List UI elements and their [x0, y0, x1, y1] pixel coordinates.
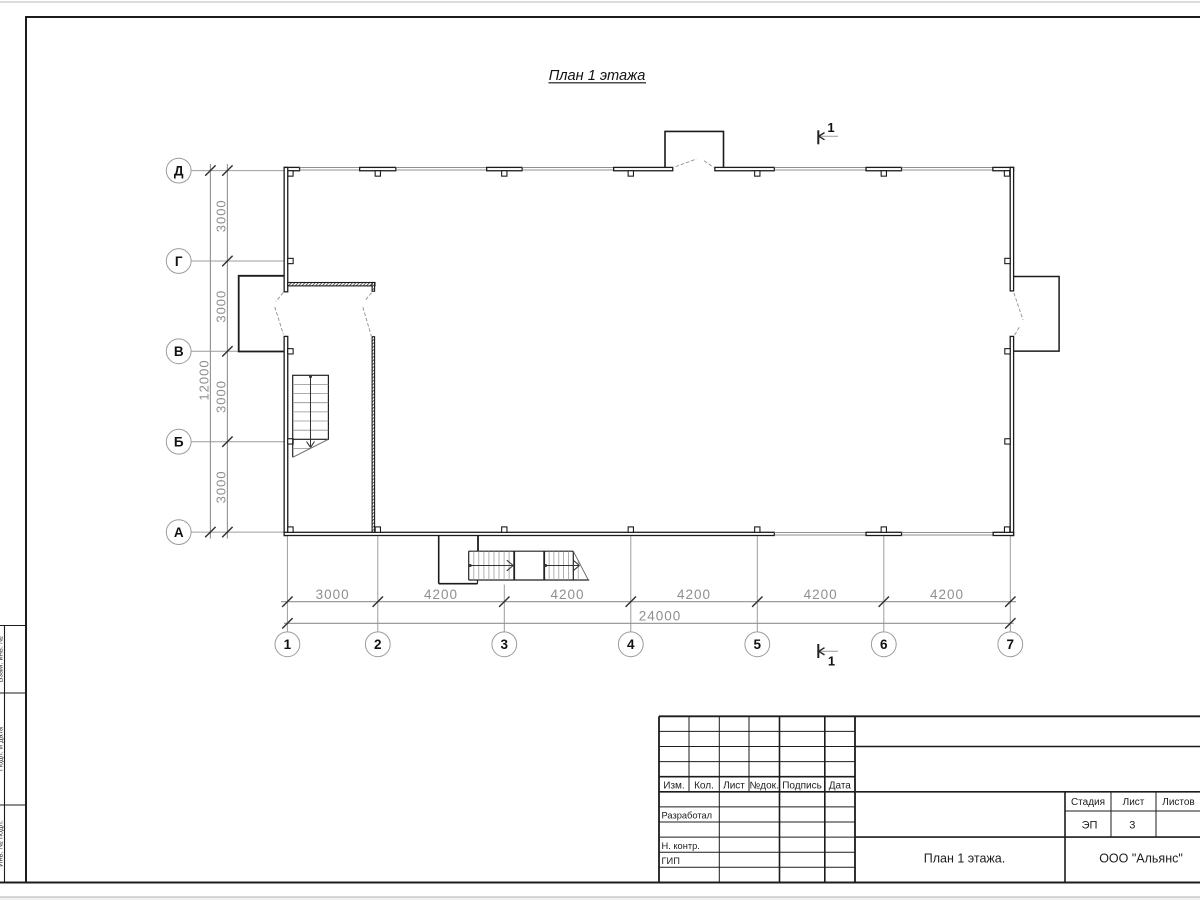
svg-text:ЭП: ЭП — [1082, 820, 1098, 832]
svg-text:А: А — [174, 525, 184, 540]
svg-text:3000: 3000 — [316, 587, 350, 602]
svg-text:7: 7 — [1007, 637, 1015, 652]
svg-text:3000: 3000 — [214, 380, 229, 413]
svg-text:3000: 3000 — [214, 470, 229, 503]
svg-text:4200: 4200 — [677, 587, 711, 602]
svg-text:ООО "Альянс": ООО "Альянс" — [1099, 852, 1183, 866]
svg-text:3000: 3000 — [214, 199, 229, 232]
svg-text:Н. контр.: Н. контр. — [662, 841, 700, 851]
svg-text:Стадия: Стадия — [1071, 797, 1105, 808]
svg-text:Д: Д — [174, 163, 184, 178]
svg-text:Б: Б — [174, 435, 184, 450]
svg-text:Лист: Лист — [1123, 797, 1145, 808]
svg-text:3: 3 — [501, 637, 509, 652]
svg-text:Кол.: Кол. — [694, 781, 714, 792]
svg-text:Взам. инв. №: Взам. инв. № — [0, 636, 5, 682]
svg-text:Дата: Дата — [829, 781, 852, 792]
svg-text:Разработал: Разработал — [662, 811, 713, 821]
svg-text:План 1 этажа.: План 1 этажа. — [924, 852, 1005, 866]
svg-text:4: 4 — [627, 637, 635, 652]
svg-text:6: 6 — [880, 637, 888, 652]
svg-text:4200: 4200 — [424, 587, 458, 602]
svg-text:ГИП: ГИП — [662, 856, 680, 866]
svg-text:Подп. и дата: Подп. и дата — [0, 726, 5, 771]
svg-text:Подпись: Подпись — [782, 781, 822, 792]
svg-text:2: 2 — [374, 637, 382, 652]
svg-text:Лист: Лист — [723, 781, 745, 792]
svg-text:1: 1 — [828, 653, 835, 668]
svg-text:3: 3 — [1129, 819, 1135, 831]
svg-text:4200: 4200 — [550, 587, 584, 602]
svg-text:4200: 4200 — [804, 587, 838, 602]
svg-text:В: В — [174, 344, 184, 359]
svg-text:План 1 этажа: План 1 этажа — [549, 68, 646, 84]
svg-text:Изм.: Изм. — [663, 781, 684, 792]
svg-text:№док.: №док. — [750, 781, 779, 792]
svg-text:3000: 3000 — [214, 290, 229, 323]
svg-text:Инв. № подл.: Инв. № подл. — [0, 820, 5, 867]
svg-text:1: 1 — [284, 637, 292, 652]
svg-text:24000: 24000 — [639, 609, 682, 624]
svg-text:12000: 12000 — [197, 359, 212, 400]
svg-text:Листов: Листов — [1162, 797, 1195, 808]
svg-text:5: 5 — [754, 637, 762, 652]
svg-text:Г: Г — [175, 254, 183, 269]
svg-text:1: 1 — [827, 120, 834, 135]
svg-text:4200: 4200 — [930, 587, 964, 602]
